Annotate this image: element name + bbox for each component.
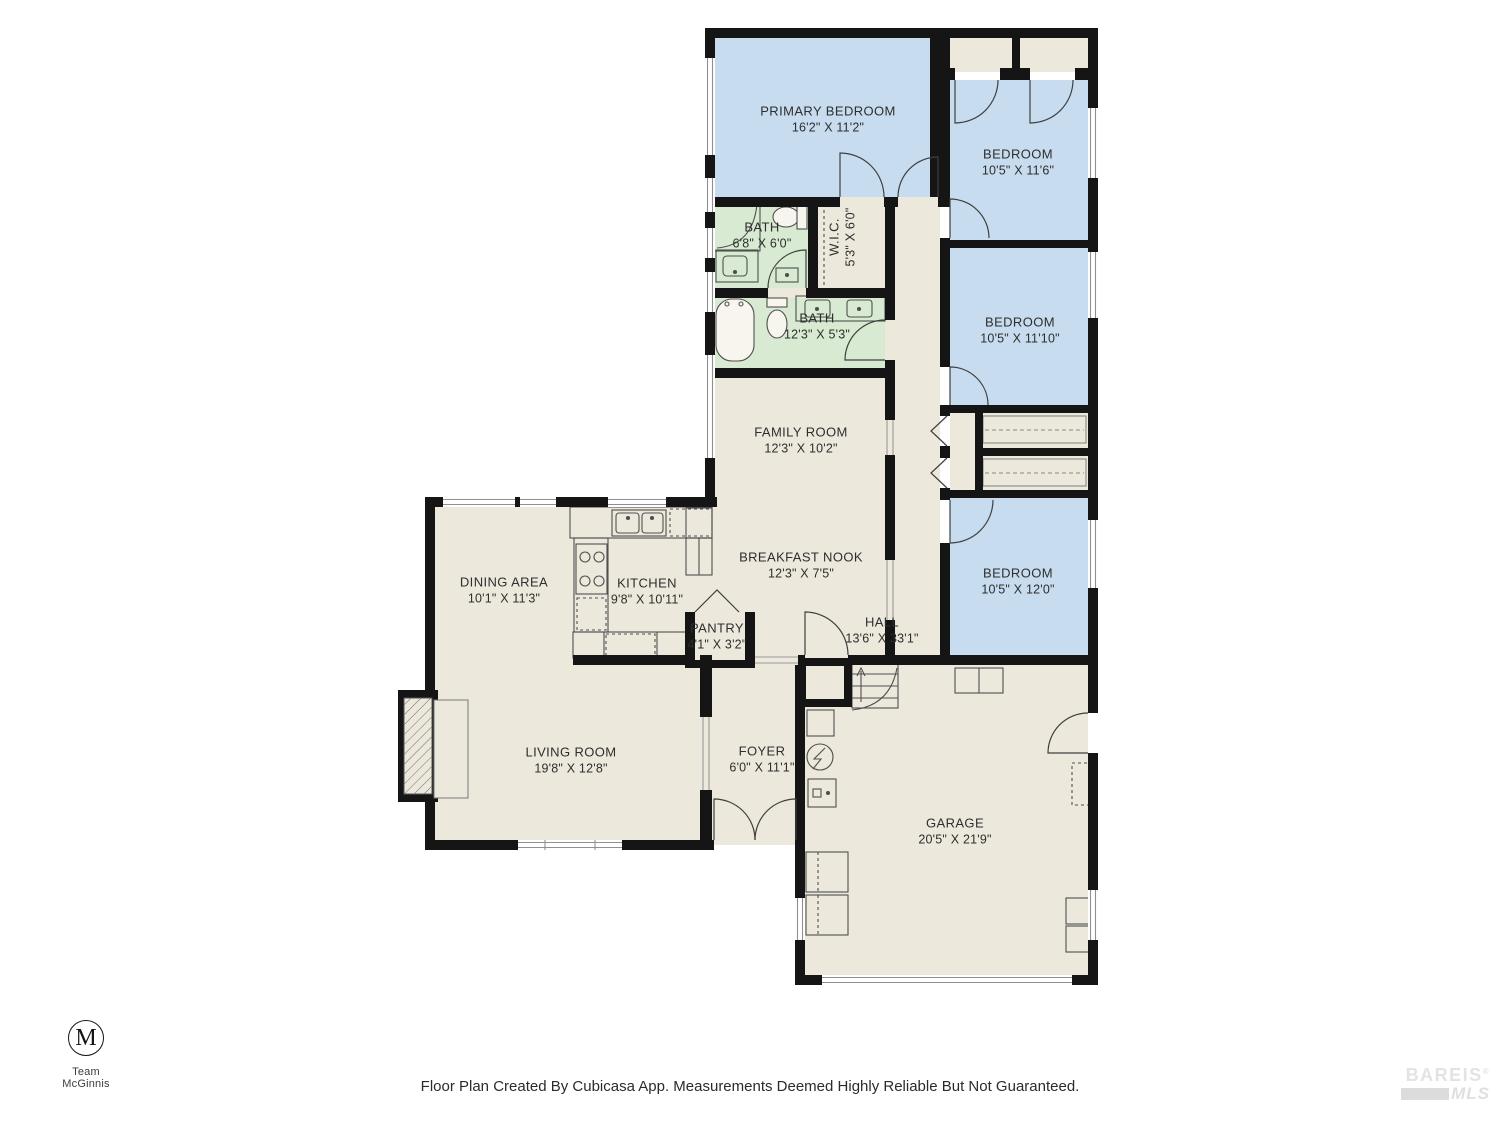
mls-logo-bar [1401,1088,1449,1100]
window [705,58,715,155]
window [443,497,515,507]
garage-door [822,975,1072,985]
team-logo: M Team McGinnis [50,1020,122,1090]
window [1088,252,1098,318]
toilet-icon [767,298,787,338]
cased-opening [885,560,895,620]
window [518,840,622,850]
cased-opening [885,420,895,455]
window [1088,890,1098,940]
floor-plan-svg [0,0,1500,1125]
mls-logo-bareis: BAREIS® [1398,1066,1490,1084]
window [795,898,805,940]
toilet-icon [773,206,807,229]
disclaimer-text: Floor Plan Created By Cubicasa App. Meas… [421,1078,1080,1095]
cased-opening [755,655,798,665]
mls-logo: BAREIS® MLS [1398,1066,1490,1102]
window [705,228,715,258]
floor-plan-page: PRIMARY BEDROOM 16'2" X 11'2" BEDROOM 10… [0,0,1500,1125]
team-name: Team McGinnis [50,1066,122,1090]
mls-logo-mls-row: MLS [1398,1085,1490,1102]
window [520,497,556,507]
cased-opening [700,717,712,790]
window [705,178,715,212]
window [1088,108,1098,178]
bathtub-icon [716,299,754,361]
mls-logo-mls: MLS [1451,1085,1490,1102]
team-logo-monogram: M [68,1020,104,1056]
window [608,497,666,507]
window [705,272,715,312]
window [1088,520,1098,588]
window [705,355,715,458]
fireplace-icon [404,698,468,798]
stair-closet [806,666,844,699]
